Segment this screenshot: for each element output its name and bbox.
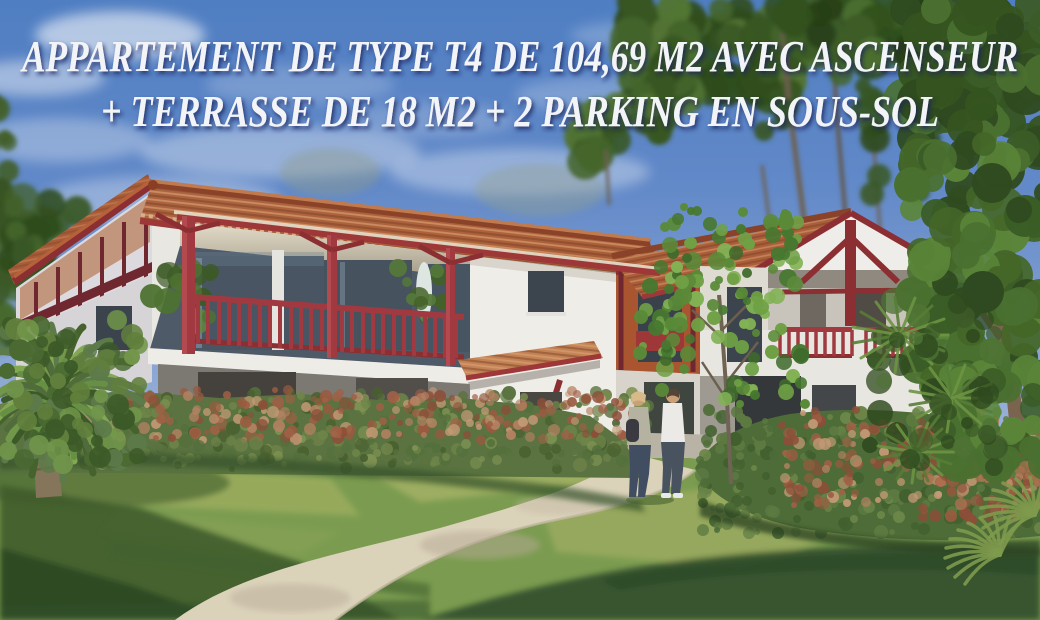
svg-text:+ TERRASSE DE 18 M2 + 2 PARKIN: + TERRASSE DE 18 M2 + 2 PARKING EN SOUS-… xyxy=(101,87,939,136)
svg-text:APPARTEMENT DE TYPE T4 DE 104,: APPARTEMENT DE TYPE T4 DE 104,69 M2 AVEC… xyxy=(20,32,1018,81)
